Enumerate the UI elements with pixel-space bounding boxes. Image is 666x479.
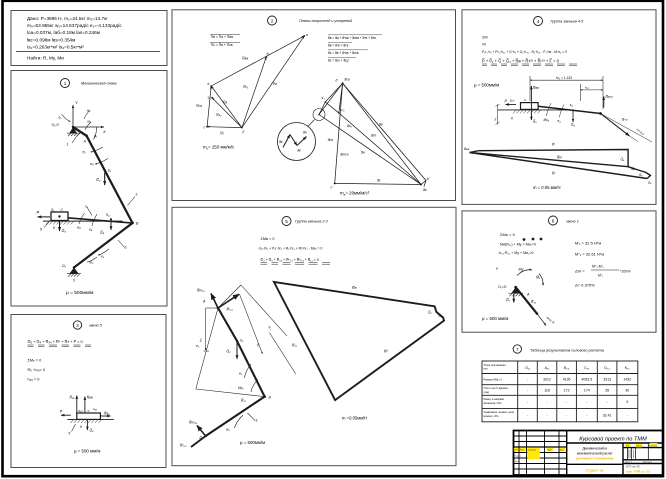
svg-text:V̅с: V̅с	[219, 132, 224, 136]
svg-text:e₄: e₄	[89, 228, 93, 232]
svg-text:a̅с: a̅с	[377, 179, 381, 183]
svg-text:R̅ⁿ: R̅ⁿ	[552, 172, 556, 176]
svg-text:90: 90	[625, 389, 629, 393]
svg-text:сил: сил	[484, 368, 489, 371]
svg-text:ΣM₅ = 0: ΣM₅ = 0	[28, 358, 43, 363]
svg-text:G̅₄: G̅₄	[571, 123, 575, 127]
svg-text:s'₂: s'₂	[341, 108, 345, 112]
svg-text:5: 5	[285, 219, 288, 224]
svg-text:V̅а: V̅а	[272, 82, 277, 86]
svg-text:G̅₄: G̅₄	[621, 158, 625, 162]
svg-text:c': c'	[331, 186, 334, 190]
svg-text:K₅₀: K₅₀	[625, 366, 631, 370]
svg-text:R̅т₂₁: R̅т₂₁	[197, 289, 205, 293]
svg-text:a̅ѕ₂: a̅ѕ₂	[347, 124, 352, 128]
svg-text:lвс=0.098м lвѕ=0.354м: lвс=0.098м lвѕ=0.354м	[27, 37, 75, 42]
svg-text:V̅с₁: V̅с₁	[242, 85, 249, 89]
svg-text:-: -	[527, 400, 529, 404]
svg-text:M'₁: M'₁	[598, 274, 604, 278]
svg-text:m = 0.05 мм/Н: m = 0.05 мм/Н	[533, 185, 561, 190]
svg-text:K: K	[80, 425, 83, 429]
svg-text:-: -	[546, 414, 548, 418]
svg-text:Листов 1: Листов 1	[643, 462, 653, 464]
svg-text:ΣM: ΣM	[482, 36, 488, 40]
svg-text:C: C	[524, 98, 527, 102]
svg-text:-: -	[527, 378, 529, 382]
svg-text:-: -	[586, 414, 588, 418]
svg-text:3: 3	[125, 246, 127, 250]
svg-text:2: 2	[271, 18, 274, 23]
svg-text:O₁;O: O₁;O	[52, 123, 60, 127]
svg-text:O₁=O: O₁=O	[498, 285, 507, 289]
svg-text:4126: 4126	[563, 378, 571, 382]
svg-text:D₅₄: D₅₄	[604, 366, 610, 370]
svg-text:момент, Н*м: момент, Н*м	[484, 414, 499, 418]
svg-text:R̅вв: R̅вв	[464, 147, 470, 151]
svg-text:рычажного механизма: рычажного механизма	[576, 457, 613, 461]
svg-text:P₁г₁⋅h₁ + Pг₂⋅h₂₁ + G⋅h₃ + G₁⋅: P₁г₁⋅h₁ + Pг₂⋅h₂₁ + G⋅h₃ + G₁⋅h₄₁ - R₁⋅h…	[482, 50, 567, 54]
svg-text:w₄: w₄	[77, 226, 81, 230]
svg-text:172: 172	[564, 389, 570, 393]
svg-text:R₅ ⋅h₄₅= 0: R₅ ⋅h₄₅= 0	[28, 367, 46, 372]
svg-text:μ = 500мм/м: μ = 500мм/м	[66, 290, 93, 296]
svg-text:P̅: P̅	[551, 143, 555, 147]
svg-text:e₄: e₄	[558, 119, 562, 123]
svg-text:3: 3	[256, 419, 258, 423]
svg-text:Разраб.: Разраб.	[514, 456, 522, 458]
svg-text:m =0.05мм/Н: m =0.05мм/Н	[342, 416, 367, 421]
svg-text:h₄₁: h₄₁	[585, 86, 589, 90]
svg-text:напр. R: напр. R	[545, 315, 555, 324]
svg-text:a̅в: a̅в	[423, 188, 427, 192]
svg-text:A₂₁: A₂₁	[545, 366, 551, 370]
svg-text:Δ= 0.375%: Δ= 0.375%	[575, 283, 595, 288]
svg-text:M''₁-M'₁: M''₁-M'₁	[592, 265, 604, 269]
svg-text:е₂: е₂	[196, 344, 200, 348]
svg-text:G̅₂: G̅₂	[428, 311, 432, 315]
svg-text:-: -	[586, 400, 588, 404]
svg-text:A: A	[83, 140, 87, 144]
svg-text:R̅т₀₃: R̅т₀₃	[189, 421, 198, 425]
svg-text:Mи₄: Mи₄	[544, 118, 550, 122]
svg-text:G̅₅: G̅₅	[639, 173, 643, 177]
svg-text:e₃: e₃	[101, 255, 105, 259]
svg-text:Курсовой проект по ТММ: Курсовой проект по ТММ	[579, 435, 647, 442]
svg-text:6: 6	[552, 218, 555, 223]
svg-text:Mу: Mу	[519, 268, 524, 272]
svg-text:hг₄: hг₄	[267, 325, 273, 331]
svg-text:e₁: e₁	[59, 116, 62, 120]
svg-text:C₄₃: C₄₃	[584, 366, 590, 370]
svg-text:A: A	[526, 293, 530, 297]
svg-text:S₂: S₂	[108, 169, 112, 173]
svg-text:№ докум.: № докум.	[528, 449, 538, 452]
svg-text:кинематический расчет: кинематический расчет	[577, 452, 613, 456]
svg-text:звено 5: звено 5	[88, 324, 103, 328]
svg-text:a̅в: a̅в	[279, 140, 283, 144]
svg-text:mv= 250 мм/м/с: mv= 250 мм/м/с	[203, 145, 235, 151]
svg-text:град: град	[484, 391, 490, 394]
svg-text:s'₁: s'₁	[322, 96, 325, 100]
svg-text:M''₁ = 32.61 Н*м: M''₁ = 32.61 Н*м	[575, 252, 604, 257]
svg-text:1: 1	[64, 81, 67, 86]
svg-text:-: -	[527, 389, 529, 393]
svg-text:B₂₃: B₂₃	[564, 366, 570, 370]
svg-text:h²³=0.2: h²³=0.2	[635, 128, 645, 137]
svg-text:b': b'	[336, 79, 339, 83]
svg-text:φ₁: φ₁	[94, 134, 97, 138]
svg-text:Подп.: Подп.	[547, 450, 553, 452]
svg-text:O₃: O₃	[62, 264, 67, 268]
svg-text:Дано: P=3695 Н, m₁=24.5кг m₂: Дано: P=3695 Н, m₁=24.5кг m₂=14.7кг	[27, 16, 108, 21]
svg-text:S₅=: S₅=	[510, 99, 515, 103]
svg-text:V̅ва: V̅ва	[241, 57, 248, 61]
svg-text:S₄: S₄	[570, 103, 574, 107]
svg-text:V̅с = V̅в + V̅св: V̅с = V̅в + V̅св	[211, 43, 233, 47]
svg-text:V̅в = V̅а + V̅ва: V̅в = V̅а + V̅ва	[211, 35, 233, 39]
svg-text:4: 4	[537, 19, 540, 24]
svg-text:a̅с = a̅в + a̅ⁿсв + a̅тсв: a̅с = a̅в + a̅ⁿсв + a̅тсв	[328, 51, 359, 55]
svg-text:Iѕ₂=0.263кг*м² Iѕ₃=0.5кг*м²: Iѕ₂=0.263кг*м² Iѕ₃=0.5кг*м²	[27, 44, 84, 49]
svg-text:K: K	[511, 117, 514, 121]
svg-text:M̅₁: M̅₁	[536, 276, 541, 280]
svg-text:R̅₃₄: R̅₃₄	[69, 396, 75, 400]
svg-text:Группа звеньев 4-5: Группа звеньев 4-5	[551, 20, 585, 24]
svg-text:звено 1: звено 1	[565, 220, 579, 224]
svg-text:3: 3	[76, 323, 79, 328]
svg-text:O₁₂: O₁₂	[525, 366, 531, 370]
svg-text:a̅к: a̅к	[298, 149, 302, 153]
svg-text:B: B	[269, 396, 272, 400]
svg-text:3312: 3312	[543, 378, 551, 382]
svg-text:35: 35	[605, 389, 609, 393]
svg-text:Лист: Лист	[520, 450, 525, 452]
svg-text:-h₂₁⋅R₂₁ + Mу + Mи₁=0: -h₂₁⋅R₂₁ + Mу + Mи₁=0	[498, 251, 533, 255]
svg-text:S₅: S₅	[51, 208, 55, 212]
svg-text:118: 118	[544, 389, 550, 393]
svg-text:Точки приложения: Точки приложения	[484, 363, 507, 367]
svg-text:S₅=: S₅=	[78, 409, 83, 413]
svg-text:7: 7	[516, 347, 519, 352]
svg-text:w₂: w₂	[90, 162, 94, 166]
svg-text:*100%: *100%	[620, 270, 631, 274]
svg-text:G̅₁: G̅₁	[506, 298, 511, 302]
svg-text:a̅'т: a̅'т	[371, 134, 376, 138]
svg-text:-: -	[527, 414, 529, 418]
svg-text:ΣMв = 0: ΣMв = 0	[261, 237, 275, 241]
svg-text:G̅₅: G̅₅	[61, 229, 66, 233]
svg-text:M'₁ = 32.5 Н*м: M'₁ = 32.5 Н*м	[575, 241, 601, 246]
svg-text:a̅св: a̅св	[328, 138, 333, 142]
svg-text:Студент гр.: Студент гр.	[586, 469, 605, 473]
svg-text:32.41: 32.41	[603, 414, 612, 418]
svg-text:R̅т: R̅т	[557, 155, 562, 159]
svg-text:S₄: S₄	[106, 213, 110, 217]
svg-text:R̅вв: R̅вв	[533, 86, 539, 90]
svg-text:Лист 1: Лист 1	[625, 462, 633, 464]
svg-text:R̅ⁿ²³: R̅ⁿ²³	[622, 118, 629, 122]
svg-text:X: X	[102, 129, 106, 134]
svg-text:Планы скоростей и ускорений: Планы скоростей и ускорений	[299, 19, 352, 23]
svg-text:V̅в: V̅в	[222, 101, 227, 105]
svg-text:G̅₂: G̅₂	[226, 350, 231, 354]
svg-text:Уравновеш. момент цепи: Уравновеш. момент цепи	[484, 410, 515, 414]
svg-text:b'': b''	[427, 177, 430, 181]
svg-text:G̅₅: G̅₅	[533, 120, 538, 124]
svg-text:A: A	[202, 300, 206, 304]
svg-text:Изм: Изм	[514, 450, 518, 452]
svg-text:Масштаб: Масштаб	[648, 446, 658, 448]
svg-text:Угол к оси X движен,: Угол к оси X движен,	[484, 386, 509, 390]
svg-text:G̅₄: G̅₄	[100, 231, 105, 235]
svg-text:P̅ + P̅₁ + G̅ + G̅₄ + R̅в + R̅: P̅ + P̅₁ + G̅ + G̅₄ + R̅в + R̅т²³ + R̅ⁿ²…	[481, 59, 559, 64]
svg-text:D₄: D₄	[648, 181, 652, 185]
svg-text:a̅'к: a̅'к	[303, 131, 307, 135]
svg-text:Динамический и: Динамический и	[582, 447, 607, 451]
svg-text:h₄₅: h₄₅	[93, 407, 98, 411]
svg-text:Масса: Масса	[636, 446, 643, 448]
svg-text:Mи₂: Mи₂	[238, 386, 244, 390]
svg-text:R̅₂₁: R̅₂₁	[241, 399, 246, 403]
svg-text:≠0: ≠0	[482, 43, 486, 47]
svg-text:Реакция Rёј, Н: Реакция Rёј, Н	[484, 378, 502, 382]
svg-text:x₄: x₄	[84, 205, 89, 209]
svg-text:G̅₅: G̅₅	[90, 429, 95, 433]
svg-text:3313: 3313	[603, 378, 611, 382]
svg-text:P̅: P̅	[36, 211, 40, 215]
svg-text:-: -	[546, 400, 548, 404]
svg-text:w₃: w₃	[226, 428, 230, 432]
svg-text:a̅в: a̅в	[379, 123, 383, 127]
svg-text:b: b	[208, 82, 210, 86]
svg-text:S₂: S₂	[240, 339, 244, 343]
svg-text:C: C	[61, 208, 64, 212]
svg-text:5: 5	[40, 228, 42, 232]
svg-text:V̅ѕ₂: V̅ѕ₂	[215, 113, 222, 117]
svg-text:a₂: a₂	[267, 52, 271, 56]
svg-text:R̅в: R̅в	[352, 286, 357, 290]
svg-text:G̅₅ + G̅₄ + R̅₃₄ + R̅ⁿ + R̅т +: G̅₅ + G̅₄ + R̅₃₄ + R̅ⁿ + R̅т + F̅ = 0	[27, 339, 83, 344]
svg-text:a̅с = a̅сх + a̅су: a̅с = a̅сх + a̅су	[328, 59, 349, 63]
svg-text:ΣMо = 0: ΣMо = 0	[500, 232, 516, 237]
svg-text:P̅: P̅	[60, 410, 63, 414]
svg-text:μ = 500 мм/м: μ = 500 мм/м	[482, 316, 508, 321]
svg-text:c: c	[204, 126, 206, 130]
svg-text:-: -	[627, 414, 629, 418]
svg-text:2: 2	[136, 193, 138, 197]
svg-text:R̅₂₁: R̅₂₁	[531, 300, 537, 304]
svg-text:w₃: w₃	[90, 261, 94, 265]
svg-text:C: C	[88, 409, 91, 413]
svg-text:e₂: e₂	[83, 150, 87, 154]
svg-text:μ = 500 мм/м: μ = 500 мм/м	[74, 449, 100, 454]
svg-text:ma= 20мм/м/с²: ma= 20мм/м/с²	[340, 191, 370, 197]
svg-text:K: K	[53, 226, 56, 230]
svg-text:a̅в = a̅ⁿв + a̅тв: a̅в = a̅ⁿв + a̅тв	[328, 44, 349, 48]
svg-text:h₄₅ = 0: h₄₅ = 0	[28, 377, 41, 382]
svg-text:174: 174	[584, 389, 590, 393]
svg-text:a̅тсв: a̅тсв	[341, 153, 349, 157]
svg-text:1432: 1432	[623, 378, 631, 382]
svg-text:Реакц. в направл.: Реакц. в направл.	[484, 397, 506, 401]
svg-text:s₂: s₂	[208, 96, 212, 100]
svg-text:w₁: w₁	[88, 120, 92, 124]
svg-text:a̅в = a̅а + a̅ⁿва + a̅тва + a̅: a̅в = a̅а + a̅ⁿва + a̅тва + a̅ⁿв + a̅тв	[328, 36, 376, 40]
svg-text:каф. ТММ гр.123: каф. ТММ гр.123	[626, 470, 650, 474]
svg-text:Группа звеньев 2-3: Группа звеньев 2-3	[295, 220, 329, 224]
svg-text:R̅ⁿ₂₁: R̅ⁿ₂₁	[227, 308, 233, 312]
svg-text:-: -	[566, 414, 568, 418]
svg-text:Механическая схема: Механическая схема	[81, 82, 117, 86]
svg-text:hг₁: hг₁	[199, 338, 203, 342]
svg-text:механизм, Н*м: механизм, Н*м	[484, 401, 502, 405]
svg-text:Y: Y	[75, 100, 78, 105]
svg-text:-: -	[607, 400, 609, 404]
svg-text:P̅: P̅	[505, 99, 508, 103]
svg-text:R̅т²³: R̅т²³	[606, 95, 614, 99]
svg-text:Найти: R, Mу, Mи: Найти: R, Mу, Mи	[27, 55, 64, 61]
svg-text:hг₄ = 1.133: hг₄ = 1.133	[556, 76, 572, 80]
svg-text:a̅св: a̅св	[345, 78, 350, 82]
svg-text:НГТУ им. Р.Е.: НГТУ им. Р.Е.	[626, 467, 641, 469]
svg-text:N̅вв: N̅вв	[87, 396, 93, 400]
svg-text:G̅₂ + G̅₃ + R̅₄₃ + R̅ⁿ₀₃ + R̅т: G̅₂ + G̅₃ + R̅₄₃ + R̅ⁿ₀₃ + R̅т₀₃ + R̅₁₂ …	[260, 258, 319, 262]
svg-text:R̅ⁿ₀₃: R̅ⁿ₀₃	[180, 444, 187, 448]
svg-text:в: в	[496, 267, 498, 271]
svg-text:-G₂⋅hг₂ + P₂г⋅hг₃ + R₁⋅hг₄ + R: -G₂⋅hг₂ + P₂г⋅hг₃ + R₁⋅hг₄ + Rт⋅hг₅ - Mи…	[258, 246, 322, 250]
svg-text:B: B	[136, 222, 139, 226]
svg-text:μ = 500мм/м: μ = 500мм/м	[240, 440, 265, 445]
svg-text:a̅н: a̅н	[361, 151, 365, 155]
svg-text:3: 3	[73, 279, 75, 283]
svg-text:R̅в₄: R̅в₄	[104, 411, 110, 415]
svg-text:m₃=53.955кг w₁=14.537рад/с e: m₃=53.955кг w₁=14.537рад/с e₁=-4.133рад/…	[27, 23, 122, 28]
svg-text:G̅₂: G̅₂	[96, 178, 101, 182]
svg-text:p: p	[242, 130, 245, 134]
svg-text:hг₅: hг₅	[493, 117, 497, 121]
svg-text:μ = 500мм/м: μ = 500мм/м	[474, 83, 499, 88]
svg-text:1: 1	[67, 143, 69, 147]
svg-text:lоа=0.037м, lаб=0.18м lаѕ=0.2: lоа=0.037м, lаб=0.18м lаѕ=0.246м	[27, 30, 100, 35]
svg-text:a: a	[306, 33, 308, 37]
svg-text:R̅ⁿ: R̅ⁿ	[384, 350, 389, 354]
svg-text:Пров.: Пров.	[514, 461, 520, 463]
svg-text:5: 5	[69, 432, 71, 436]
svg-text:e₀: e₀	[87, 109, 91, 113]
svg-text:4053.5: 4053.5	[581, 378, 592, 382]
svg-text:V̅св: V̅св	[195, 104, 202, 108]
svg-text:Mи(R₂₁) + Mу + Mи₁=0: Mи(R₂₁) + Mу + Mи₁=0	[500, 243, 536, 247]
svg-text:R̅₁₁: R̅₁₁	[292, 344, 298, 348]
svg-text:-: -	[566, 400, 568, 404]
svg-text:Δ% =: Δ% =	[575, 269, 585, 274]
svg-text:0: 0	[626, 400, 628, 404]
svg-text:Лит.: Лит.	[626, 446, 630, 448]
svg-text:Таблица результатов силового р: Таблица результатов силового расчета	[530, 349, 604, 353]
svg-text:e₂: e₂	[239, 372, 243, 376]
